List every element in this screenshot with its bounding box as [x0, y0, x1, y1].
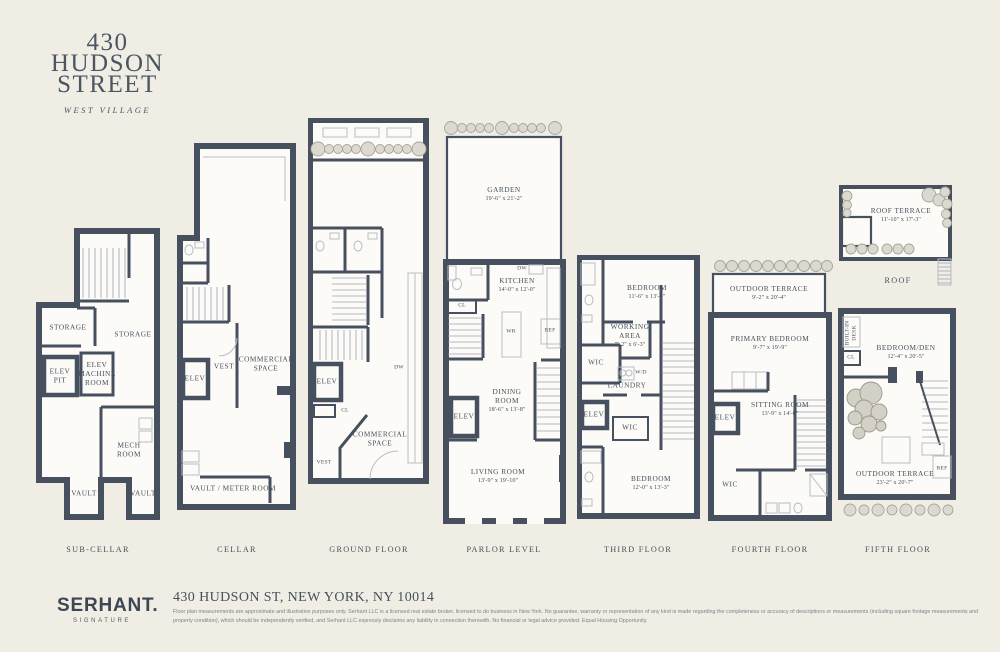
floorplan-fourth: OUTDOOR TERRACE9'-2" x 20'-4" PRIMARY BE… [708, 258, 836, 522]
room-label-bedroom-1: BEDROOM11'-6" x 13'-4" [615, 284, 679, 302]
room-label-elev: ELEV [713, 414, 737, 423]
floor-label-roof: ROOF [884, 276, 911, 285]
room-label-wr: WR [502, 329, 520, 336]
room-label-cl: CL [453, 303, 471, 310]
room-label-vault-1: VAULT [64, 490, 104, 499]
room-label-storage-2: STORAGE [103, 331, 163, 340]
roof-drawing [838, 183, 963, 289]
footer-disclaimer: Floor plan measurements are approximate … [173, 608, 988, 625]
floorplan-sheet: 430 HUDSON STREET WEST VILLAGE STORAGE S… [0, 0, 1000, 652]
room-label-laundry: LAUNDRY [605, 382, 649, 391]
floorplan-roof: ROOF TERRACE11'-10" x 17'-3" [838, 183, 963, 289]
room-label-ref: REF [932, 466, 952, 473]
room-label-mech: MECH ROOM [111, 441, 147, 459]
title-street-2: STREET [40, 74, 175, 95]
floorplan-third: BEDROOM11'-6" x 13'-4" WORKING AREA7'-2"… [577, 255, 701, 521]
cellar-drawing [177, 143, 297, 511]
room-label-vest: VEST [311, 460, 337, 467]
room-label-bedroom-2: BEDROOM12'-0" x 13'-3" [619, 475, 683, 493]
room-label-elev: ELEV [582, 411, 606, 420]
floorplan-fifth: BUILT-IN DESK CL BEDROOM/DEN12'-4" x 20'… [838, 303, 963, 525]
room-label-wd: W/D [631, 370, 651, 377]
room-label-vault-2: VAULT [123, 490, 163, 499]
floor-label-ground: GROUND FLOOR [329, 545, 409, 554]
room-label-wic: WIC [718, 481, 742, 490]
serhant-logo: SERHANT. [57, 595, 158, 617]
room-label-wic-1: WIC [584, 359, 608, 368]
room-label-commercial: COMMERCIAL SPACE [234, 355, 298, 373]
stairs [938, 263, 951, 283]
shrub-icons [844, 504, 953, 516]
room-label-cl: CL [842, 355, 860, 362]
room-label-primary-bedroom: PRIMARY BEDROOM9'-7" x 19'-9" [718, 335, 822, 353]
room-label-bedroom-den: BEDROOM/DEN12'-4" x 20'-5" [866, 344, 946, 362]
room-label-vault-meter: VAULT / METER ROOM [185, 485, 281, 494]
room-label-elev-pit: ELEV PIT [47, 367, 73, 385]
room-label-commercial: COMMERCIAL SPACE [345, 430, 415, 448]
room-label-elev: ELEV [452, 413, 476, 422]
room-label-elev-machine: ELEV MACHINE ROOM [77, 361, 117, 387]
room-label-elev: ELEV [183, 375, 207, 384]
room-label-wic-2: WIC [618, 424, 642, 433]
floor-label-parlor: PARLOR LEVEL [466, 545, 541, 554]
room-label-built-in-desk: BUILT-IN DESK [844, 316, 857, 350]
room-label-elev: ELEV [315, 378, 339, 387]
floorplan-parlor: GARDEN19'-6" x 21'-2" KITCHEN14'-0" x 12… [443, 118, 568, 525]
room-label-sitting-room: SITTING ROOM13'-9" x 14'-0" [740, 401, 820, 419]
room-label-kitchen: KITCHEN14'-0" x 12'-0" [482, 277, 552, 295]
room-label-cl: CL [336, 408, 354, 415]
floor-label-cellar: CELLAR [217, 545, 257, 554]
floor-label-third: THIRD FLOOR [604, 545, 672, 554]
room-label-living: LIVING ROOM13'-9" x 19'-10" [458, 468, 538, 486]
property-title: 430 HUDSON STREET WEST VILLAGE [40, 32, 175, 115]
room-label-storage-1: STORAGE [46, 324, 90, 333]
room-label-dining: DINING ROOM18'-6" x 13'-8" [480, 388, 534, 414]
shrub-icons [445, 122, 562, 135]
serhant-signature: SIGNATURE [73, 618, 131, 624]
room-label-garden: GARDEN19'-6" x 21'-2" [464, 186, 544, 204]
shrub-icons [715, 261, 833, 272]
room-label-dw: DW [513, 266, 531, 273]
room-label-dw: DW [390, 365, 408, 372]
floor-label-fifth: FIFTH FLOOR [865, 545, 931, 554]
floor-label-sub-cellar: SUB-CELLAR [66, 545, 130, 554]
floorplan-sub-cellar: STORAGE STORAGE ELEV PIT ELEV MACHINE RO… [35, 228, 161, 524]
footer-address: 430 HUDSON ST, NEW YORK, NY 10014 [173, 590, 434, 606]
neighborhood-label: WEST VILLAGE [40, 105, 175, 115]
floorplan-cellar: ELEV VEST COMMERCIAL SPACE VAULT / METER… [177, 143, 297, 511]
floor-label-fourth: FOURTH FLOOR [732, 545, 809, 554]
room-label-outdoor-terrace: OUTDOOR TERRACE23'-2" x 20'-7" [845, 470, 945, 488]
room-label-working-area: WORKING AREA7'-2" x 6'-3" [607, 323, 653, 349]
room-label-terrace: OUTDOOR TERRACE9'-2" x 20'-4" [719, 285, 819, 303]
room-label-roof-terrace: ROOF TERRACE11'-10" x 17'-3" [856, 207, 946, 225]
room-label-ref: REF [540, 328, 560, 335]
parlor-drawing [443, 118, 568, 525]
floorplan-ground: ELEV CL VEST DW COMMERCIAL SPACE [308, 118, 431, 484]
